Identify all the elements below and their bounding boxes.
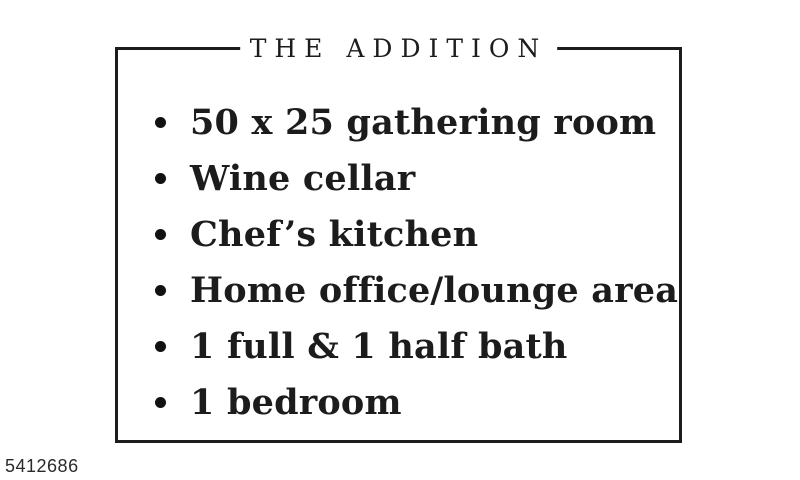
list-item-label: Chef’s kitchen xyxy=(190,217,478,252)
list-item: 50 x 25 gathering room xyxy=(118,94,679,150)
list-item: 1 full & 1 half bath xyxy=(118,318,679,374)
feature-list: 50 x 25 gathering room Wine cellar Chef’… xyxy=(118,94,679,430)
bullet-icon xyxy=(155,341,166,352)
list-item-label: Home office/lounge area xyxy=(190,273,678,308)
list-item: Chef’s kitchen xyxy=(118,206,679,262)
bullet-icon xyxy=(155,229,166,240)
card-title: THE ADDITION xyxy=(240,35,558,63)
list-item-label: 1 bedroom xyxy=(190,385,402,420)
list-item-label: 50 x 25 gathering room xyxy=(190,105,656,140)
feature-box: THE ADDITION 50 x 25 gathering room Wine… xyxy=(115,47,682,443)
list-item-label: Wine cellar xyxy=(190,161,415,196)
bullet-icon xyxy=(155,173,166,184)
listing-feature-slide: THE ADDITION 50 x 25 gathering room Wine… xyxy=(0,0,800,480)
list-item-label: 1 full & 1 half bath xyxy=(190,329,568,364)
listing-id: 5412686 xyxy=(5,456,79,477)
list-item: Home office/lounge area xyxy=(118,262,679,318)
list-item: 1 bedroom xyxy=(118,374,679,430)
list-item: Wine cellar xyxy=(118,150,679,206)
bullet-icon xyxy=(155,397,166,408)
bullet-icon xyxy=(155,285,166,296)
bullet-icon xyxy=(155,117,166,128)
